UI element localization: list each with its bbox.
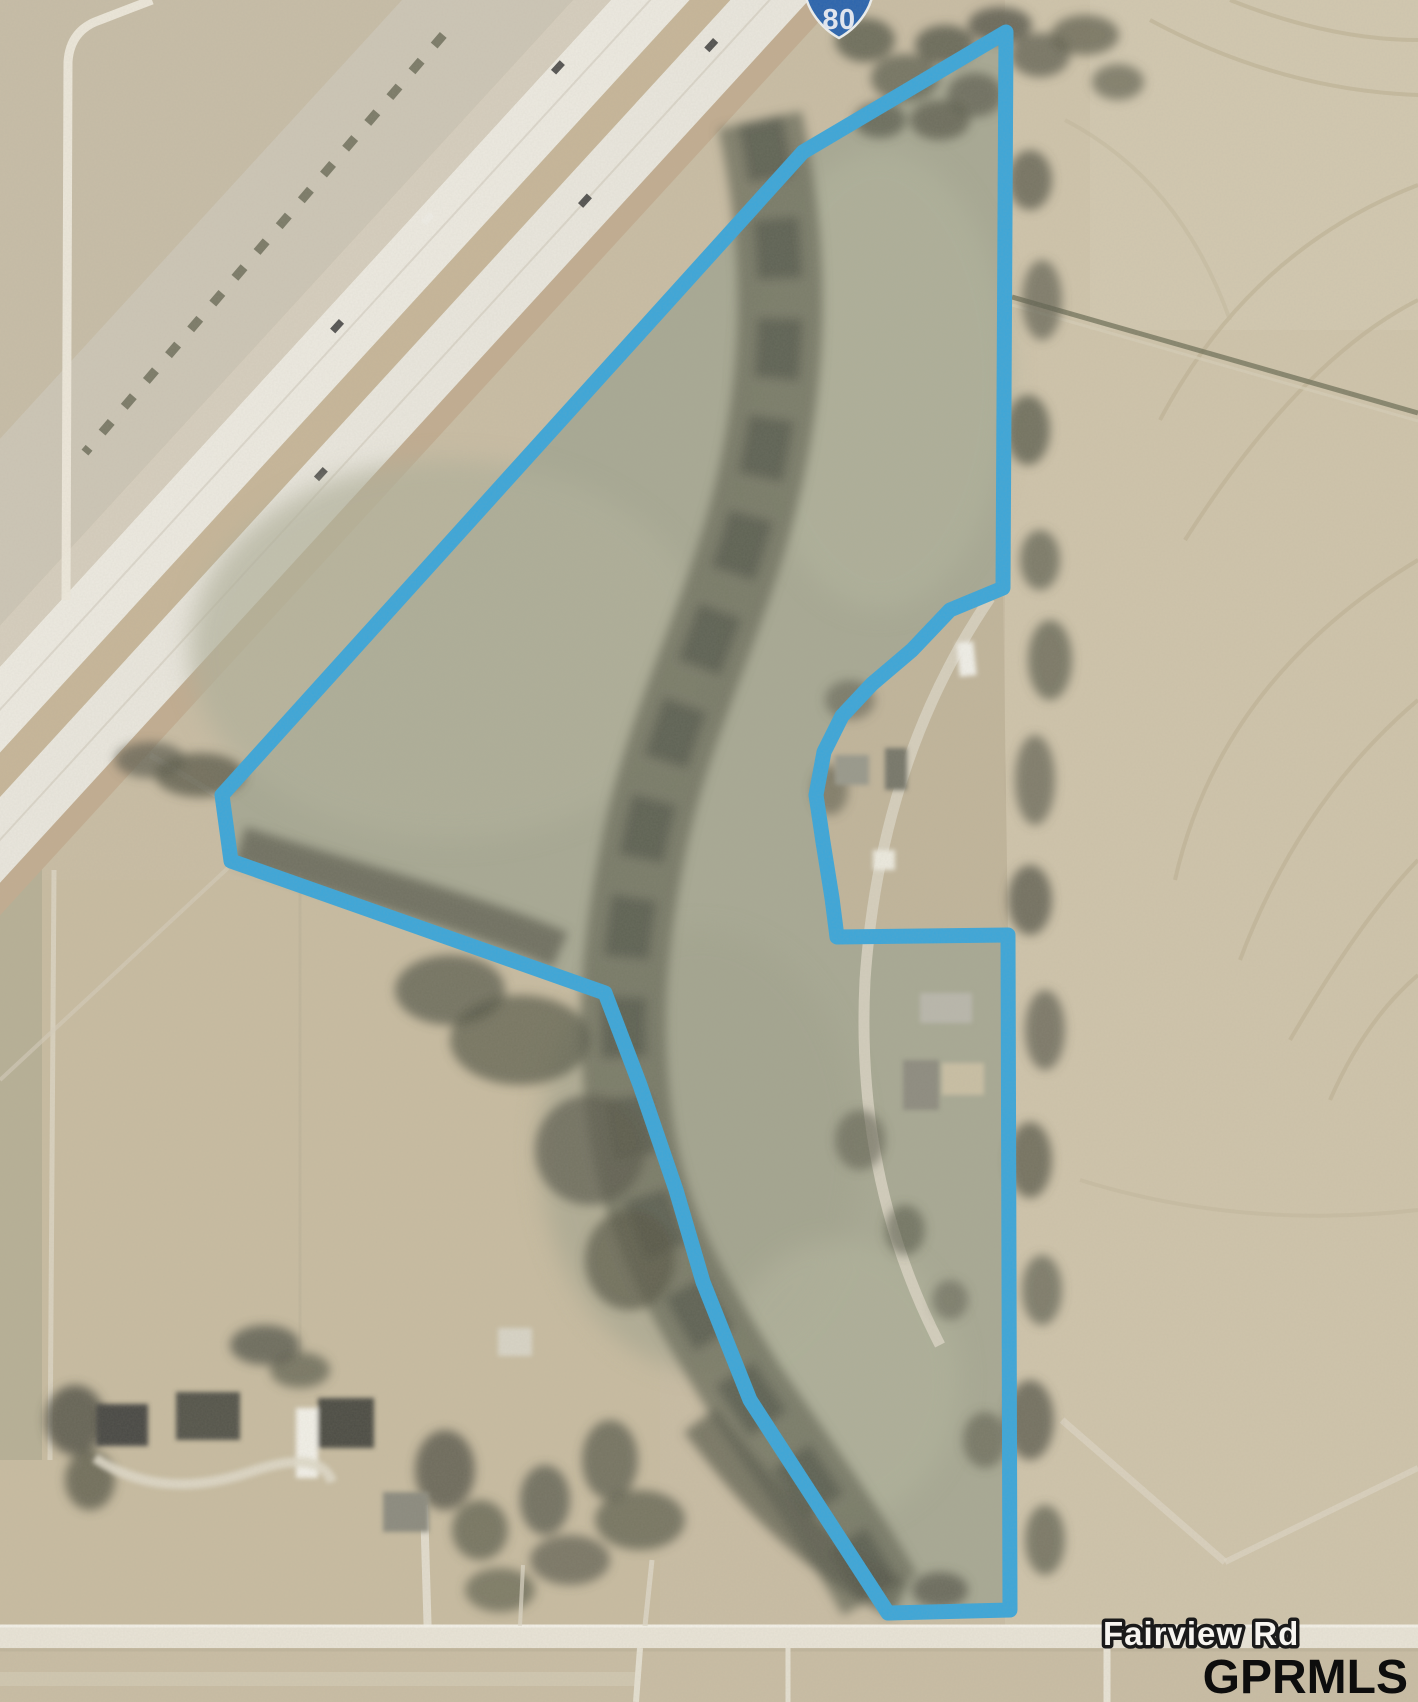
road-label: Fairview Rd [1103,1615,1299,1652]
aerial-parcel-map: 80 Fairview Rd GPRMLS [0,0,1418,1702]
aerial-photo: 80 Fairview Rd GPRMLS [0,0,1418,1702]
watermark: GPRMLS [1203,1651,1408,1702]
photo-grain [0,0,1418,1702]
